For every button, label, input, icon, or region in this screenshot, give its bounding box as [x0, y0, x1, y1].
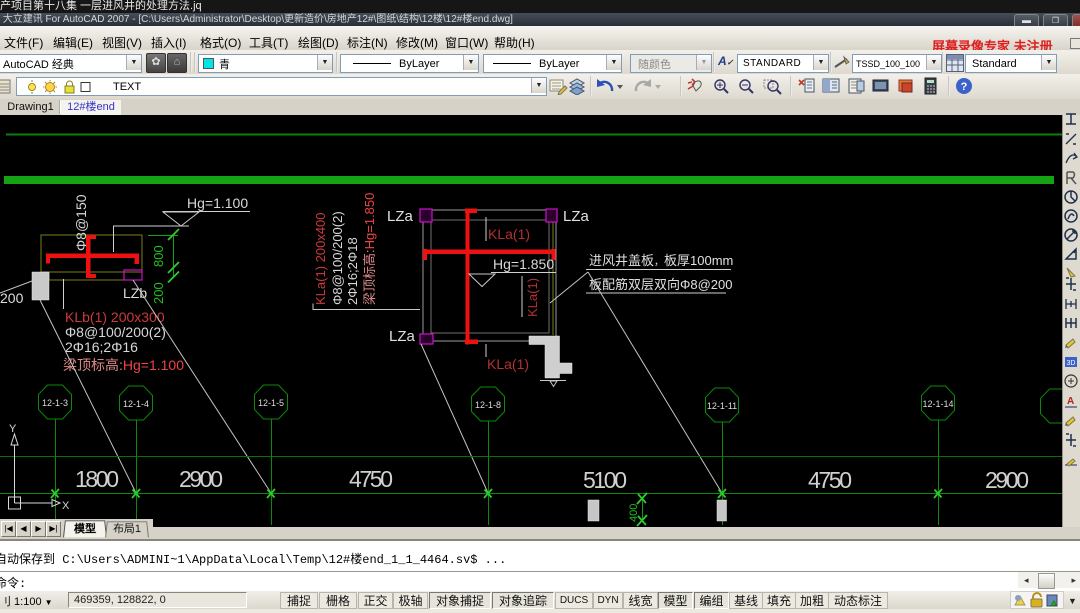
svg-text:Y: Y — [9, 423, 17, 435]
svg-text:1800: 1800 — [75, 466, 119, 492]
svg-text:KLa(1): KLa(1) — [487, 356, 529, 372]
svg-text:12-1-8: 12-1-8 — [475, 400, 501, 410]
svg-text:A: A — [1067, 396, 1074, 407]
svg-text:3D: 3D — [1067, 360, 1076, 367]
svg-text:800: 800 — [151, 245, 166, 267]
svg-text:2900: 2900 — [985, 467, 1029, 493]
svg-text:2Φ16;2Φ16: 2Φ16;2Φ16 — [65, 339, 138, 355]
svg-text:?: ? — [961, 81, 968, 93]
svg-text:进风井盖板，板厚100mm: 进风井盖板，板厚100mm — [589, 253, 733, 268]
svg-text:400: 400 — [628, 504, 640, 522]
svg-text:12-1-4: 12-1-4 — [123, 399, 149, 409]
svg-text:LZa: LZa — [387, 208, 414, 225]
svg-text:12-1-5: 12-1-5 — [258, 398, 284, 408]
svg-text:KLa(1): KLa(1) — [488, 226, 530, 242]
svg-text:LZa: LZa — [563, 208, 590, 225]
svg-text:KLb(1) 200x300: KLb(1) 200x300 — [65, 309, 165, 325]
svg-text:2900: 2900 — [179, 466, 223, 492]
svg-text:板配筋双层双向Φ8@200: 板配筋双层双向Φ8@200 — [589, 277, 733, 292]
svg-text:Hg=1.100: Hg=1.100 — [187, 195, 248, 211]
svg-text:200: 200 — [0, 290, 24, 306]
svg-text:LZa: LZa — [389, 328, 416, 345]
svg-text:12-1-3: 12-1-3 — [42, 398, 68, 408]
svg-text:2Φ16;2Φ18: 2Φ16;2Φ18 — [345, 237, 360, 305]
svg-text:200: 200 — [151, 282, 166, 304]
svg-text:Φ8@100/200(2): Φ8@100/200(2) — [330, 211, 345, 305]
svg-text:X: X — [62, 500, 70, 512]
svg-text:4750: 4750 — [349, 466, 393, 492]
svg-text:LZb: LZb — [123, 285, 147, 301]
svg-text:KLa(1) 200x400: KLa(1) 200x400 — [313, 212, 328, 305]
svg-text:Hg=1.850: Hg=1.850 — [493, 256, 554, 272]
svg-text:4750: 4750 — [808, 467, 852, 493]
svg-text:5100: 5100 — [583, 467, 627, 493]
svg-text:梁顶标高:Hg=1.100: 梁顶标高:Hg=1.100 — [63, 357, 184, 373]
svg-text:12-1-14: 12-1-14 — [922, 399, 953, 409]
svg-text:KLa(1): KLa(1) — [525, 278, 540, 317]
svg-text:Φ8@150: Φ8@150 — [73, 194, 89, 251]
svg-text:梁顶标高:Hg=1.850: 梁顶标高:Hg=1.850 — [362, 193, 377, 305]
svg-text:12-1-11: 12-1-11 — [707, 401, 737, 411]
svg-text:Φ8@100/200(2): Φ8@100/200(2) — [65, 324, 166, 340]
